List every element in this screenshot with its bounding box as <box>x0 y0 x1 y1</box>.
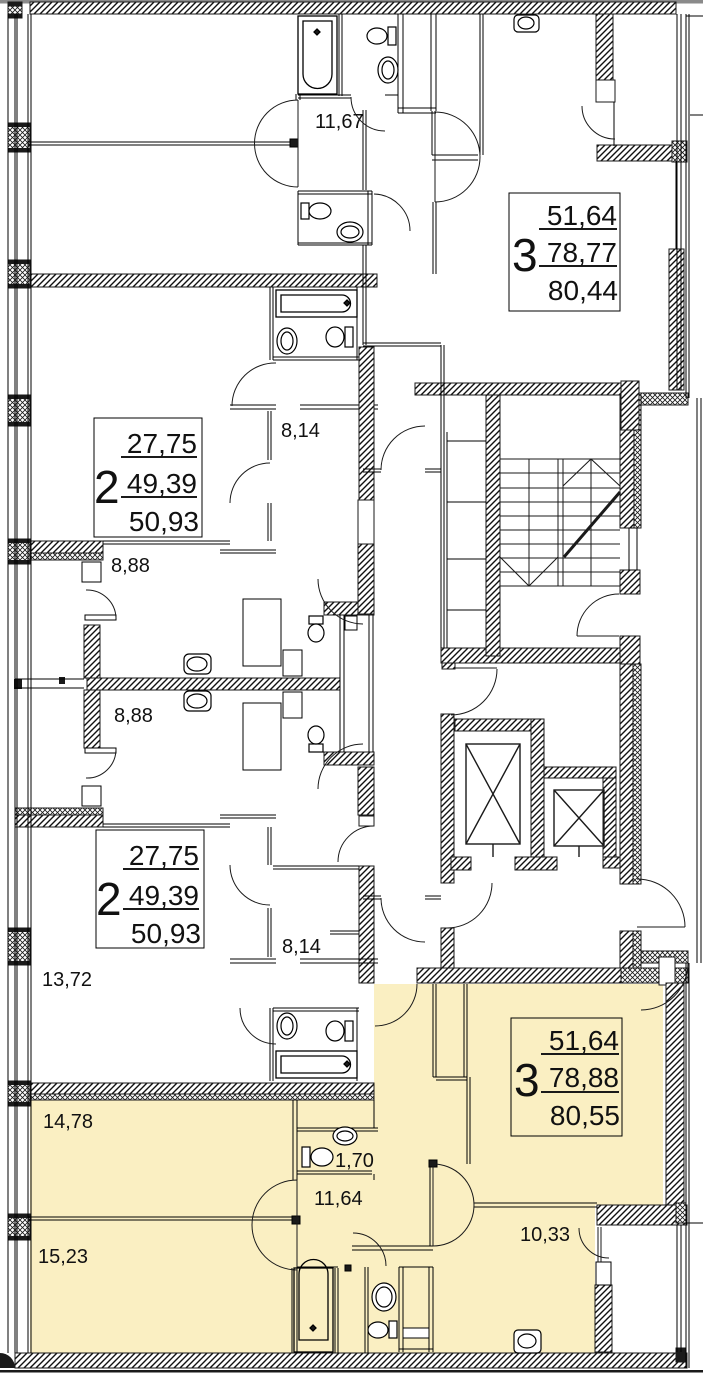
svg-text:80,55: 80,55 <box>550 1100 620 1131</box>
svg-text:3: 3 <box>514 1054 540 1106</box>
svg-text:2: 2 <box>96 873 122 925</box>
svg-text:8,88: 8,88 <box>111 555 150 577</box>
svg-text:51,64: 51,64 <box>547 200 617 231</box>
svg-text:50,93: 50,93 <box>131 918 201 949</box>
svg-text:80,44: 80,44 <box>548 275 618 306</box>
svg-text:15,23: 15,23 <box>38 1246 88 1268</box>
svg-text:11,67: 11,67 <box>315 111 364 133</box>
svg-text:14,78: 14,78 <box>43 1111 93 1133</box>
svg-text:78,88: 78,88 <box>549 1062 619 1093</box>
svg-text:3: 3 <box>512 229 538 281</box>
svg-text:8,88: 8,88 <box>114 705 153 727</box>
svg-text:2: 2 <box>94 461 120 513</box>
svg-text:10,33: 10,33 <box>520 1224 570 1246</box>
svg-text:49,39: 49,39 <box>129 880 199 911</box>
svg-text:13,72: 13,72 <box>42 969 92 991</box>
svg-text:27,75: 27,75 <box>129 840 199 871</box>
svg-text:78,77: 78,77 <box>547 237 617 268</box>
svg-text:27,75: 27,75 <box>127 428 197 459</box>
svg-text:51,64: 51,64 <box>549 1025 619 1056</box>
svg-text:8,14: 8,14 <box>282 936 321 958</box>
svg-text:11,64: 11,64 <box>314 1188 363 1210</box>
svg-text:8,14: 8,14 <box>281 420 320 442</box>
svg-text:1,70: 1,70 <box>335 1150 374 1172</box>
svg-text:49,39: 49,39 <box>127 468 197 499</box>
svg-text:50,93: 50,93 <box>129 506 199 537</box>
